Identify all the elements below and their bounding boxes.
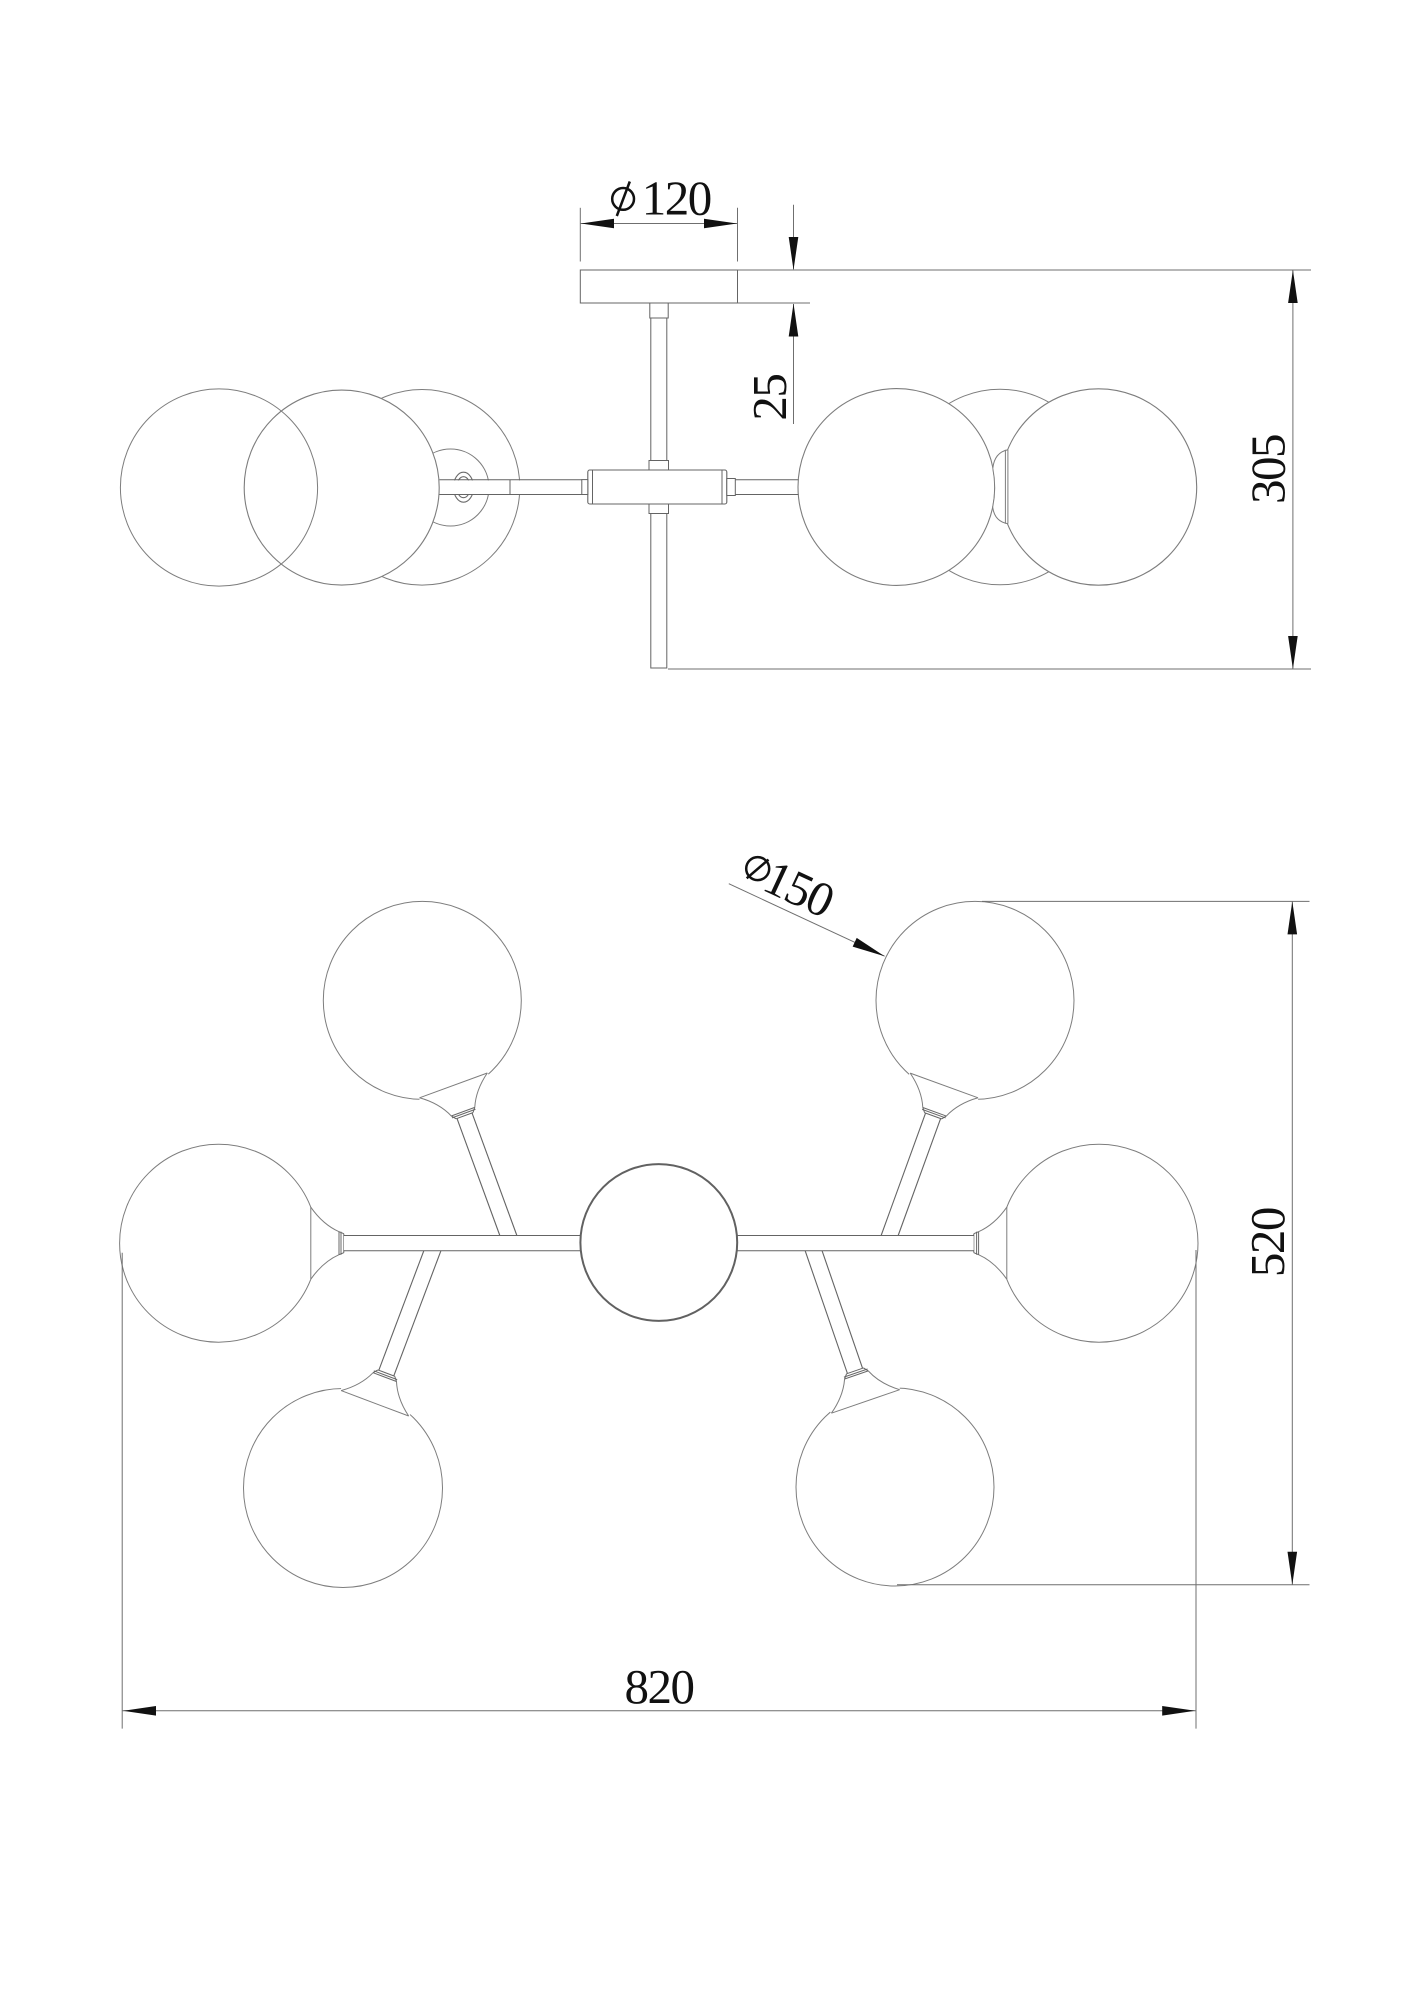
svg-text:520: 520: [1240, 1208, 1295, 1277]
svg-text:305: 305: [1240, 435, 1295, 504]
svg-text:820: 820: [625, 1659, 694, 1714]
svg-text:25: 25: [742, 375, 797, 421]
svg-text:120: 120: [642, 170, 711, 225]
